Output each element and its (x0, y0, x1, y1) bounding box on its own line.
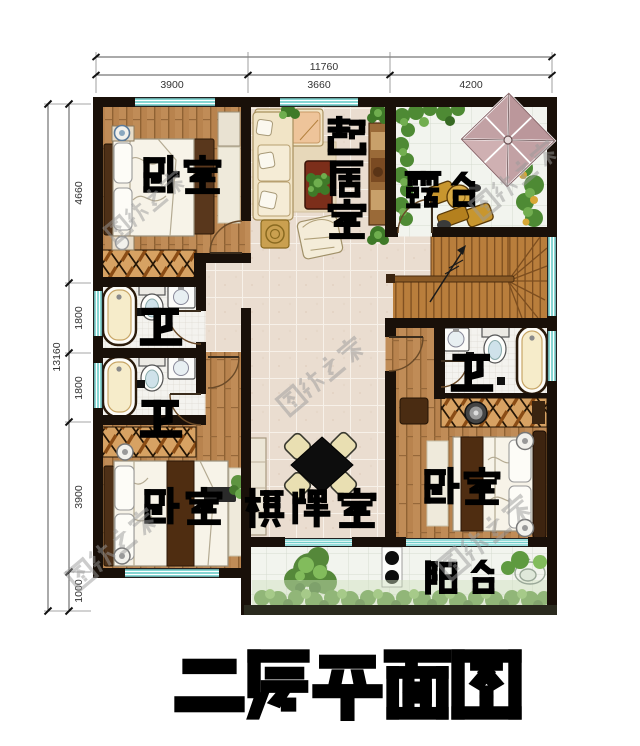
svg-text:4660: 4660 (73, 181, 85, 205)
svg-text:11760: 11760 (310, 61, 339, 73)
svg-text:13160: 13160 (51, 342, 63, 371)
svg-text:3900: 3900 (73, 485, 85, 509)
svg-text:3660: 3660 (307, 79, 331, 91)
svg-text:1800: 1800 (73, 306, 85, 330)
svg-text:4200: 4200 (459, 79, 483, 91)
svg-text:1800: 1800 (73, 376, 85, 400)
svg-text:3900: 3900 (160, 79, 184, 91)
